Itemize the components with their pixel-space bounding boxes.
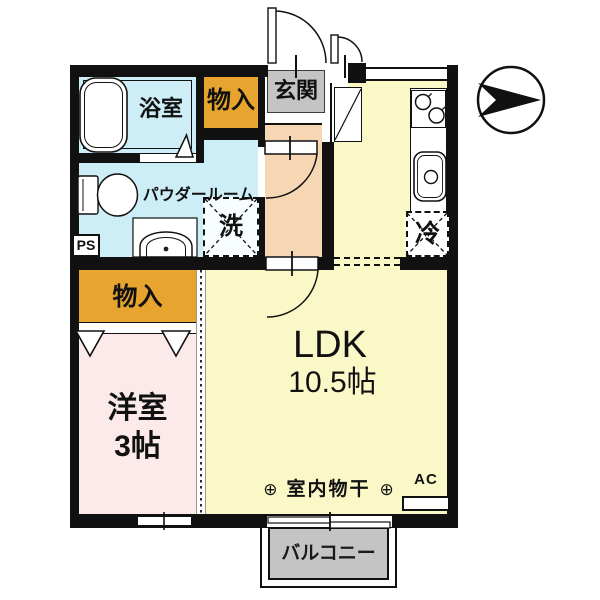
ldk-door-arc — [267, 270, 318, 317]
entry-door-leaf — [268, 8, 276, 63]
indoor-drying-label: 室内物干 — [286, 480, 370, 500]
vanity-drain-icon — [164, 247, 169, 252]
washing-machine-label: 洗 — [203, 197, 259, 257]
drying-hook-icon: ⊕ — [380, 481, 394, 499]
pipe-space-label: PS — [72, 234, 100, 257]
burner-icon — [416, 95, 431, 110]
powder-door-leaf — [265, 141, 317, 154]
burner-tick — [428, 94, 431, 97]
entry-child-door-arc — [338, 37, 362, 62]
floorplan: 浴室 物入 玄関 パウダールーム 洗 PS 冷 LDK 10.5帖 物入 洋室 … — [0, 0, 600, 600]
slider-panel — [268, 517, 330, 523]
entry-child-door-leaf — [331, 35, 338, 63]
ldk-label: LDK — [230, 326, 430, 366]
drying-hook-icon: ⊕ — [263, 481, 277, 499]
burner-icon — [429, 108, 444, 123]
entry-door-arc — [276, 11, 326, 63]
toilet-bowl-icon — [98, 174, 138, 216]
western-room-size-label: 3帖 — [79, 430, 196, 464]
indoor-drying-row: ⊕ 室内物干 ⊕ — [246, 479, 411, 501]
refrigerator-label: 冷 — [406, 211, 449, 257]
toilet-tank-icon — [78, 176, 98, 214]
storage-west-label: 物入 — [79, 283, 196, 311]
bath-folding-door-icon — [176, 135, 193, 157]
closet-door-mark — [76, 331, 104, 356]
ldk-size-label: 10.5帖 — [230, 366, 435, 400]
entrance-label: 玄関 — [267, 78, 325, 104]
powder-door-arc — [266, 154, 317, 198]
storage-top-label: 物入 — [204, 88, 258, 114]
ac-label: AC — [405, 471, 447, 488]
bathroom-label: 浴室 — [128, 97, 194, 121]
faucet-icon — [425, 171, 438, 184]
bathtub-icon — [80, 78, 127, 152]
shoe-cabinet-diagonal — [335, 89, 361, 140]
closet-door-mark — [162, 331, 190, 356]
balcony-label: バルコニー — [268, 527, 389, 580]
burner-tick — [442, 107, 445, 110]
western-room-label: 洋室 — [79, 392, 196, 426]
